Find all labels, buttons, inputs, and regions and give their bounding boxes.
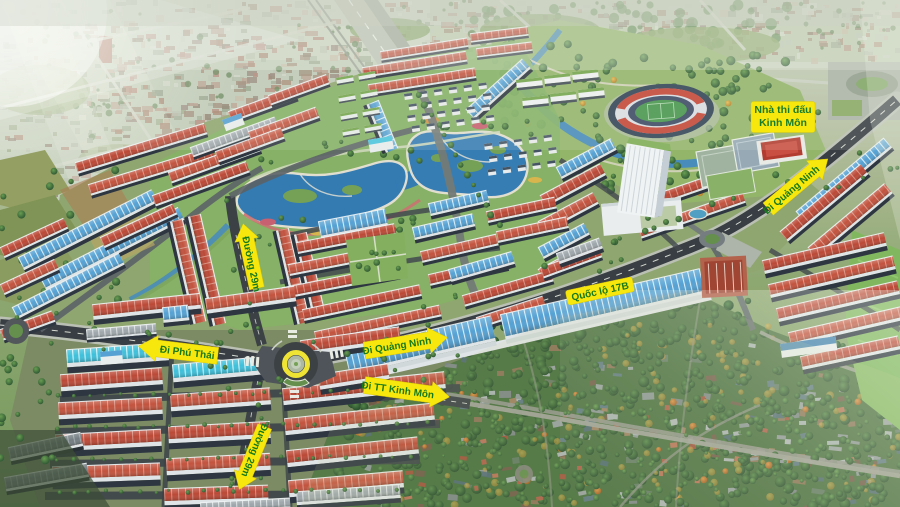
svg-text:Kinh Môn: Kinh Môn xyxy=(759,117,807,129)
svg-text:Nhà thi đấu: Nhà thi đấu xyxy=(754,104,811,116)
